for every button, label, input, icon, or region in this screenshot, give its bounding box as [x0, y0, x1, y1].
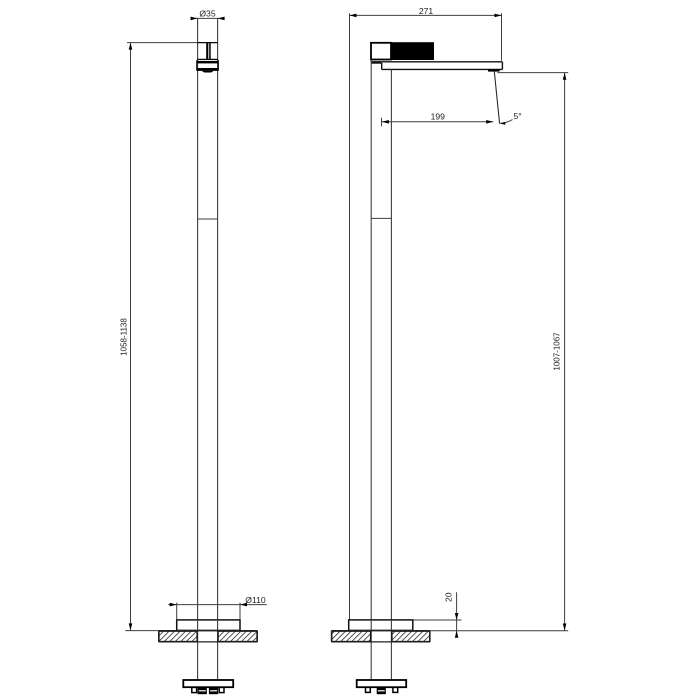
svg-text:Ø35: Ø35 [199, 8, 215, 18]
svg-text:Ø110: Ø110 [245, 595, 266, 605]
svg-text:271: 271 [419, 6, 434, 16]
svg-text:5°: 5° [514, 111, 522, 121]
svg-text:1007-1067: 1007-1067 [552, 332, 561, 371]
svg-text:1058-1138: 1058-1138 [119, 318, 128, 356]
svg-text:199: 199 [431, 112, 446, 122]
svg-text:20: 20 [443, 592, 453, 602]
